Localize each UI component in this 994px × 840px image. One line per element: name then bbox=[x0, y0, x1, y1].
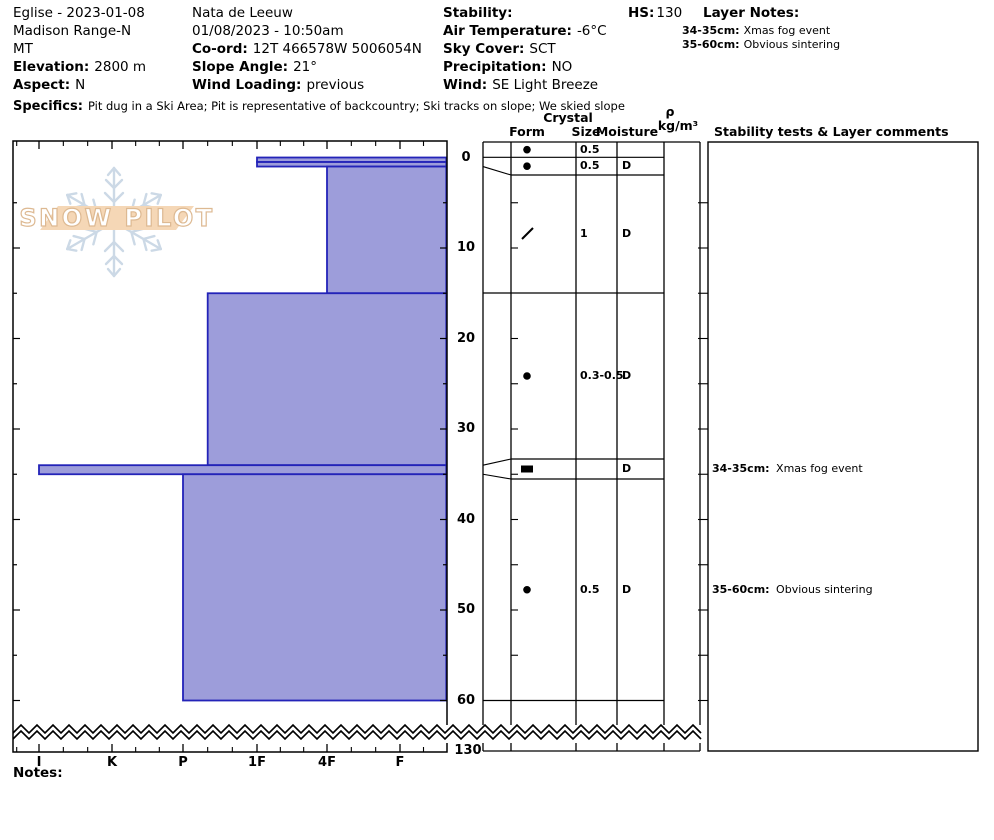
grain-form-ice-lens-icon bbox=[521, 466, 533, 473]
grain-size-value: 1 bbox=[580, 227, 588, 240]
layer-comment-range: 35-60cm: bbox=[712, 583, 770, 596]
depth-axis-label: 60 bbox=[457, 693, 475, 708]
hardness-axis-label: P bbox=[178, 755, 188, 770]
moisture-value: D bbox=[622, 369, 631, 382]
snowflake-line bbox=[78, 239, 89, 250]
depth-axis-label: 30 bbox=[457, 421, 475, 436]
grain-form-rounded-icon bbox=[523, 162, 531, 170]
layer-comment-range: 34-35cm: bbox=[712, 462, 770, 475]
snowflake-arm bbox=[105, 228, 123, 276]
layer-comment: 34-35cm: Xmas fog event bbox=[712, 462, 863, 475]
depth-axis-label: 10 bbox=[457, 240, 475, 255]
layer-bar bbox=[327, 167, 446, 294]
moisture-value: D bbox=[622, 462, 631, 475]
snowflake-line bbox=[155, 195, 164, 204]
snowflake-line bbox=[64, 240, 73, 249]
hardness-axis-label: 4F bbox=[318, 755, 336, 770]
layer-comment: 35-60cm: Obvious sintering bbox=[712, 583, 873, 596]
snowflake-line bbox=[155, 240, 164, 249]
snowflake-line bbox=[89, 232, 101, 244]
moisture-value: D bbox=[622, 159, 631, 172]
depth-axis-label: 0 bbox=[461, 150, 470, 165]
row-connector-line bbox=[483, 459, 511, 465]
hardness-axis-label: K bbox=[107, 755, 117, 770]
snowflake-line bbox=[105, 242, 114, 251]
layer-comment-text: Obvious sintering bbox=[773, 583, 873, 596]
logo-text: SNOW PILOT bbox=[19, 204, 214, 232]
hardness-axis-label: I bbox=[37, 755, 42, 770]
row-connector-line bbox=[483, 474, 511, 479]
grain-size-value: 0.3-0.5 bbox=[580, 369, 624, 382]
layer-bar bbox=[208, 293, 447, 465]
hardness-axis-label: 1F bbox=[248, 755, 266, 770]
grain-form-rounded-icon bbox=[523, 586, 531, 594]
snowflake-line bbox=[105, 193, 114, 202]
layer-bar bbox=[39, 465, 446, 474]
row-connector-line bbox=[483, 167, 511, 175]
hardness-axis-label: F bbox=[396, 755, 405, 770]
comments-column-border bbox=[708, 142, 978, 751]
snowflake-line bbox=[64, 195, 73, 204]
grain-form-decomposing-icon bbox=[522, 228, 533, 239]
profile-graphics: SNOW PILOT bbox=[0, 0, 994, 840]
grain-form-rounded-icon bbox=[523, 372, 531, 380]
grain-size-value: 0.5 bbox=[580, 159, 600, 172]
snowflake-line bbox=[127, 232, 139, 244]
moisture-value: D bbox=[622, 227, 631, 240]
depth-axis-label: 40 bbox=[457, 512, 475, 527]
total-depth-label: 130 bbox=[454, 743, 481, 758]
snowflake-line bbox=[114, 193, 123, 202]
snowpilot-profile-page: Eglise - 2023-01-08 Madison Range-N MT E… bbox=[0, 0, 994, 840]
grain-size-value: 0.5 bbox=[580, 583, 600, 596]
depth-axis-label: 20 bbox=[457, 331, 475, 346]
depth-axis-label: 50 bbox=[457, 602, 475, 617]
moisture-value: D bbox=[622, 583, 631, 596]
layer-comment-text: Xmas fog event bbox=[773, 462, 863, 475]
snowflake-line bbox=[114, 242, 123, 251]
grain-form-rounded-icon bbox=[523, 146, 531, 154]
grain-size-value: 0.5 bbox=[580, 143, 600, 156]
snowflake-line bbox=[139, 239, 150, 250]
layer-bar bbox=[183, 474, 446, 700]
